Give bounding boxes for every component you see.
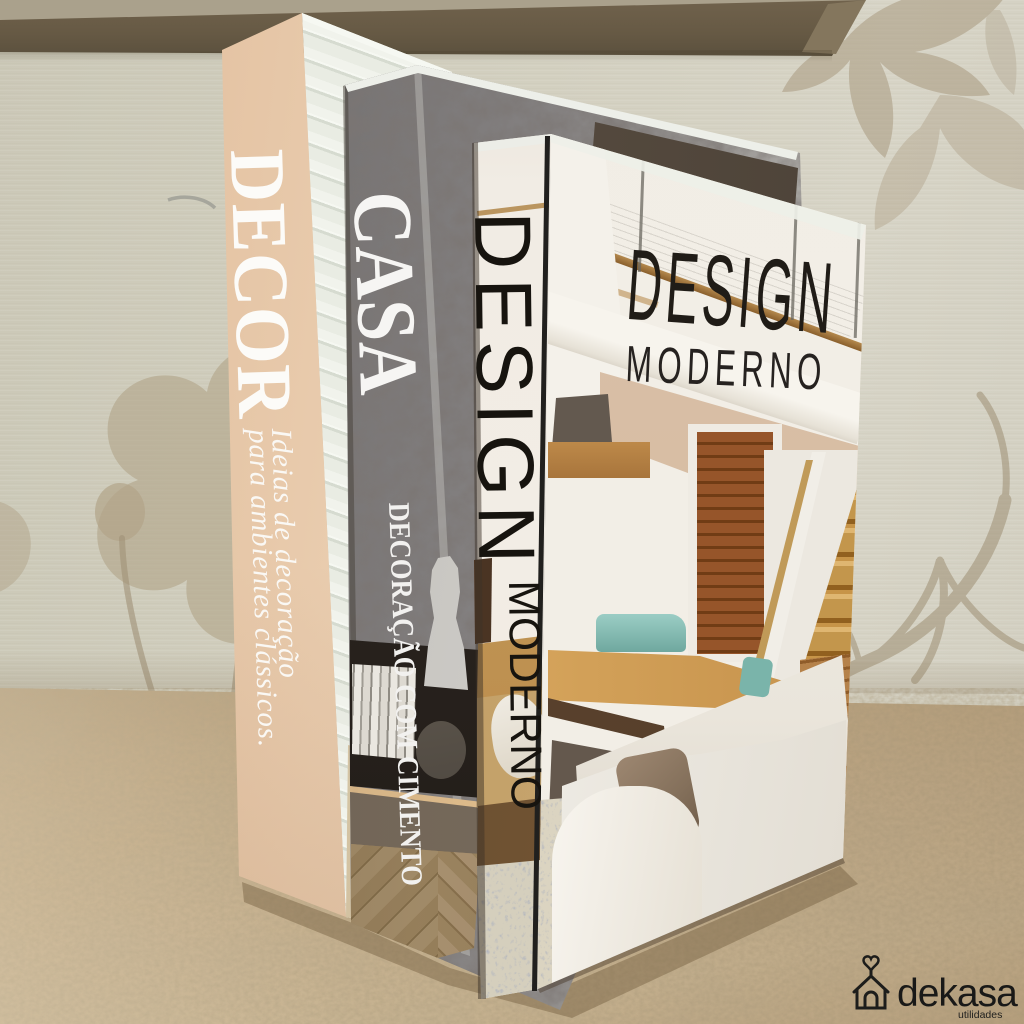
svg-text:utilidades: utilidades <box>958 1009 1002 1021</box>
